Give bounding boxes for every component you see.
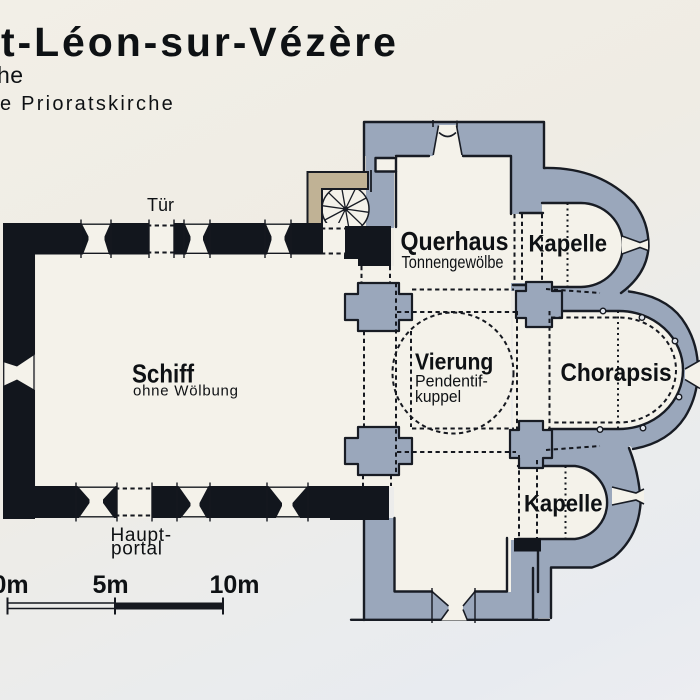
svg-text:ohne Wölbung: ohne Wölbung [133, 383, 239, 400]
svg-text:10m: 10m [210, 571, 260, 599]
svg-text:Kapelle: Kapelle [529, 230, 608, 257]
svg-text:e Prioratskirche: e Prioratskirche [0, 93, 175, 115]
svg-text:he: he [0, 62, 24, 88]
svg-text:Tonnengewölbe: Tonnengewölbe [402, 253, 504, 273]
svg-text:kuppel: kuppel [415, 387, 461, 406]
svg-text:Vierung: Vierung [415, 349, 493, 375]
svg-text:0m: 0m [0, 571, 29, 599]
svg-text:Kapelle: Kapelle [524, 490, 603, 517]
svg-text:5m: 5m [93, 571, 129, 599]
svg-text:Chorapsis: Chorapsis [561, 359, 672, 387]
svg-text:t-Léon-sur-Vézère: t-Léon-sur-Vézère [1, 19, 399, 65]
svg-text:Tür: Tür [147, 195, 174, 215]
svg-text:portal: portal [111, 539, 163, 560]
